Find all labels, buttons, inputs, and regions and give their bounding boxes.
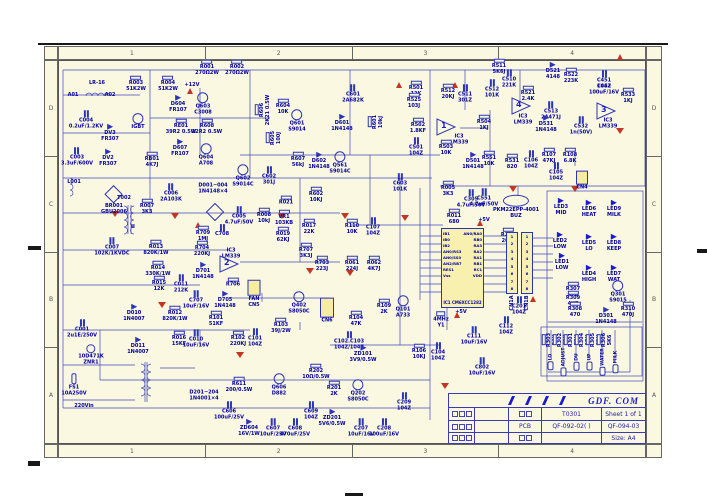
component-value: 1N4148 <box>308 165 330 171</box>
signature-mark <box>559 396 566 405</box>
component-value: FR307 <box>99 162 117 168</box>
component-ref: LR-16 <box>89 81 105 87</box>
component-l001: L001 <box>67 180 81 186</box>
component-ref: T002 <box>117 196 131 202</box>
component-r008: R00810kJ <box>257 208 271 225</box>
component-value: 270Ω2W <box>225 71 249 77</box>
component-r005: R0053K3 <box>441 181 455 198</box>
cap-symbol <box>110 237 115 244</box>
component-c106: C106104Z <box>524 150 538 170</box>
component-value: 103KB <box>275 221 293 227</box>
component-value: Y1 <box>437 323 444 329</box>
component-value: 1KJ <box>479 126 488 132</box>
sheet-number: Sheet 1 of 1 <box>601 408 645 420</box>
component-c601: C6012A682K <box>342 84 364 104</box>
comparator-symbol: 2 <box>218 254 240 278</box>
component-r108: R1086.8K <box>563 148 577 165</box>
stamp-cell <box>449 433 474 443</box>
pin-number: 7 <box>511 280 514 284</box>
component-4mhz: 4MHzY1 <box>433 311 449 329</box>
cap-symbol <box>168 183 173 190</box>
component-value: 820K/1W <box>162 317 187 323</box>
component-value: HEAT <box>582 213 597 219</box>
component-value: 223J <box>316 267 328 273</box>
comparator-number: 1 <box>441 121 447 130</box>
pin-number: 7 <box>526 280 529 284</box>
component-value: 1n(50V) <box>570 130 592 136</box>
tr-symbol <box>198 92 209 103</box>
component-c609: C609104Z <box>304 401 318 421</box>
stamp-cell <box>541 433 601 443</box>
component-d001-004: D001~0041N4148×4 <box>198 183 227 195</box>
power-rail-icon <box>530 296 536 302</box>
scan-artifact <box>38 43 668 45</box>
pcb-label: PCB <box>508 421 541 432</box>
zn2-symbol <box>86 344 95 353</box>
component-value: S8050C <box>288 309 309 315</box>
component-value: 16V/1W <box>238 432 260 438</box>
signature-mark <box>542 396 549 405</box>
component-r013: R013820K/1W <box>143 240 168 257</box>
component-r308: R308470 <box>568 302 582 319</box>
component-ref: 220Vin <box>74 404 94 410</box>
component-r504: R5041KJ <box>477 115 491 132</box>
button-lo: LO <box>548 354 555 371</box>
ic-part: CM6XCC1282 <box>452 300 482 305</box>
component-led3: LED3MID <box>554 198 568 217</box>
component-d601: D6011N4148 <box>331 114 353 133</box>
cap-symbol <box>292 418 297 425</box>
component-r531: R531820 <box>505 154 519 171</box>
component-led9: LED9MILK <box>607 200 621 219</box>
component-value: CN5 <box>248 303 259 309</box>
component-ref: CN4 <box>576 186 587 192</box>
component-ref: A01 <box>68 93 79 99</box>
component-r101: R10151KF <box>209 311 223 328</box>
component-led5: LED5LO <box>582 234 596 253</box>
component-ref: R021 <box>279 201 293 207</box>
ground-icon <box>236 352 244 358</box>
component-c708: C708 <box>215 224 229 238</box>
component-c112: C112104Z <box>499 316 513 336</box>
pin-number: 4 <box>526 257 529 261</box>
component-value: 20KJ <box>442 95 455 101</box>
pin-number: 4 <box>511 257 514 261</box>
button-du: DU <box>574 353 581 370</box>
component-value: 1N4148 <box>331 127 353 133</box>
component-c105: C105104Z <box>549 162 563 182</box>
component-ref: IGBT <box>131 125 144 131</box>
component-value: 223K <box>564 79 578 85</box>
component-value: 301J <box>263 180 275 186</box>
component-value: 10K <box>484 162 495 168</box>
component-value: 101K <box>485 93 499 99</box>
component-r601: R60110kJ <box>368 115 385 129</box>
drawing-code-1: QF-092-02( ) <box>541 421 601 432</box>
button-water: WATER <box>600 348 607 376</box>
cap-symbol <box>271 418 276 425</box>
pin-number: 6 <box>526 272 529 276</box>
component-c512: C512101K <box>485 79 499 99</box>
component-r525: R525103J <box>407 93 421 110</box>
con-symbol <box>248 280 261 296</box>
component-d705: D7051N4148 <box>214 291 236 310</box>
component-r611: R611200/0.5W <box>226 377 253 394</box>
pin-number: 1 <box>511 235 514 239</box>
component-value: 2K <box>380 310 387 316</box>
cap-symbol <box>266 166 271 173</box>
component-10d471k: 10D471KZNR1 <box>78 344 103 366</box>
component-d521: D5214148 <box>546 62 561 81</box>
pushbutton-symbol <box>587 361 593 370</box>
component-led2: LED2LOW <box>553 232 567 251</box>
component-value: 5V6/0.5W <box>318 422 345 428</box>
component-value: 4K7J <box>146 163 159 169</box>
component-value: 22R2 0.5W <box>192 130 222 136</box>
component-c603: C603101K <box>393 173 407 193</box>
brg-symbol <box>206 203 224 221</box>
stamp-cell <box>474 421 508 432</box>
stamp-cell <box>508 433 541 443</box>
component-r102: R102220KJ <box>230 331 246 348</box>
component-c104: C104104Z <box>431 342 445 362</box>
component-ref: II <box>131 225 135 231</box>
stamp-cell <box>508 408 541 420</box>
stamp-cell <box>449 408 474 420</box>
component-value: 470uF/25V <box>280 432 310 438</box>
component-r109: R1092K <box>377 299 391 316</box>
component-c004: C0040.2uF/1.2KV <box>69 110 103 130</box>
cap-symbol <box>435 342 440 349</box>
component-value: 10K <box>278 110 289 116</box>
component-value: 200/0.5W <box>226 388 253 394</box>
component-value: 51KF <box>209 322 223 328</box>
component-value: S8050C <box>347 397 368 403</box>
component-ref: A02 <box>105 93 116 99</box>
component-value: FR307 <box>101 137 119 143</box>
cap-symbol <box>79 319 84 326</box>
component-value: 104Z <box>549 176 563 182</box>
component-value: 104Z <box>499 330 513 336</box>
cap-symbol <box>472 326 477 333</box>
ground-icon <box>509 186 517 192</box>
pushbutton-symbol <box>613 364 619 373</box>
component-value: 4148 <box>546 75 560 81</box>
signature-mark <box>525 396 532 405</box>
component-d010: D0101N4007 <box>123 304 145 323</box>
component-r015: R01512K <box>152 276 166 293</box>
component-q603: Q603C3008 <box>194 92 212 116</box>
component-d501: D5011N4148 <box>462 152 484 171</box>
ic-pin-label: VDD <box>463 273 482 279</box>
cap-symbol <box>83 110 88 117</box>
component-r004: R00451K2W <box>158 76 178 93</box>
component-value: 1N4148 <box>192 275 214 281</box>
component-value: 2A682K <box>342 98 364 104</box>
comparator-number: 4 <box>516 100 522 109</box>
component-value: C3008 <box>194 110 212 116</box>
ground-icon <box>306 268 314 274</box>
tr-symbol <box>353 379 364 390</box>
component-c003: C0033.3uF/600V <box>61 147 93 167</box>
component-value: LOW <box>556 266 569 272</box>
component-r110: R11010K <box>345 219 359 236</box>
component-c532: C5321n(50V) <box>570 116 592 136</box>
component-q601: Q601S9014 <box>288 109 306 133</box>
ic-ref: IC1 <box>443 300 450 305</box>
component-q402: Q402S8050C <box>288 291 309 315</box>
component-ii: II <box>131 225 135 231</box>
sheet-size: Size: A4 <box>601 433 645 443</box>
component-value: 12K <box>154 287 165 293</box>
component-a02: A02 <box>105 93 116 99</box>
component-led6: LED6HEAT <box>582 200 597 219</box>
component-r606: R6062K21 0.5W <box>255 95 272 125</box>
signature-row: GDF. COM <box>449 394 645 407</box>
component-value: 1N4007 <box>127 350 149 356</box>
component-value: KEEP <box>607 247 621 253</box>
button-label: UP <box>588 354 593 361</box>
component-c101: C101104Z <box>248 328 262 348</box>
cap-symbol <box>194 290 199 297</box>
component-value: LO <box>585 247 592 253</box>
component-c111: C11110uF/16V <box>461 326 488 346</box>
cap-symbol <box>194 329 199 336</box>
cap-symbol <box>528 150 533 157</box>
component-q606: Q606D882 <box>272 373 287 397</box>
button-label: DU <box>575 353 580 360</box>
component-220vin: 220Vin <box>74 404 94 410</box>
button-label: MILK <box>614 351 619 364</box>
component-cn4: CN4 <box>576 171 588 192</box>
comparator-number: 3 <box>601 105 607 114</box>
component-value: 22K <box>304 230 315 236</box>
stamp-cell <box>474 408 508 420</box>
component-q101: Q101A733 <box>396 295 411 319</box>
pin-number: 8 <box>511 287 514 291</box>
component-value: FR107 <box>169 108 187 114</box>
component-r201: R2012K <box>327 381 341 398</box>
component-r502: R5021.8KF <box>410 118 426 135</box>
component-c602: C602301J <box>262 166 276 186</box>
component-zd101: ZD1013V9/0.5W <box>349 345 376 364</box>
pin-number: 3 <box>511 250 514 254</box>
title-block: GDF. COM T0301 Sheet 1 of 1 PCB QF-092-0… <box>448 393 646 444</box>
component-value: 4.7uF/50V <box>457 203 486 209</box>
cap-symbol <box>179 274 184 281</box>
cap-symbol <box>401 392 406 399</box>
component-a01: A01 <box>68 93 79 99</box>
cap-symbol <box>359 418 364 425</box>
tr-symbol <box>292 109 303 120</box>
component-d602: D6021N4148 <box>308 152 330 171</box>
component-ref: CN6 <box>321 319 332 325</box>
component-value: 1N4148 <box>535 128 557 134</box>
tr-symbol <box>398 295 409 306</box>
tr-symbol <box>274 373 285 384</box>
component-value: 680 <box>449 220 459 226</box>
component-value: 10uF/16V <box>461 340 488 346</box>
component-rb01: RB014K7J <box>145 152 160 169</box>
component-r019: R01962KJ <box>276 227 290 244</box>
component-value: 10uF/16V <box>469 371 496 377</box>
component-q561: Q561S9014C <box>329 151 350 175</box>
cap-symbol <box>490 79 495 86</box>
component-value: A733 <box>396 313 410 319</box>
component-fan: FANCN5 <box>248 280 261 309</box>
button-label: WATER <box>601 348 606 366</box>
component-zd604: ZD60416V/1W <box>238 419 260 438</box>
component-r503: R50310K <box>439 140 453 157</box>
component-dv2: DV2FR307 <box>99 149 117 168</box>
component-value: 221K <box>502 83 516 89</box>
component-r306: R3065K6 <box>597 333 614 347</box>
component-value: 470 <box>570 313 580 319</box>
scan-artifact <box>28 246 41 250</box>
component-led8: LED8KEEP <box>607 234 621 253</box>
component-value: 104Z <box>366 231 380 237</box>
component-ref: C708 <box>215 232 229 238</box>
component-value: A708 <box>199 161 213 167</box>
component--12v: +12V <box>184 83 199 89</box>
component-value: 2K21 0.5W <box>266 95 272 125</box>
component-r061: R061224J <box>345 256 359 273</box>
pin-number: 2 <box>526 242 529 246</box>
component-value: 1.8KF <box>410 129 426 135</box>
tr-symbol <box>238 164 249 175</box>
component-value: HIGH <box>582 278 596 284</box>
comparator-symbol: 1 <box>435 117 457 141</box>
ic1-microcontroller: IB1IB0IB2AN0/RS3AN0/SS0AN2/RB7RES1VssAN0… <box>441 228 484 308</box>
component-lr-16: LR-16 <box>89 81 105 87</box>
component-r103: R10339J/2W <box>271 318 291 335</box>
component-value: 5K6 <box>608 335 614 346</box>
component-value: 1N4148 <box>214 304 236 310</box>
component-r012: R012820K/1W <box>162 306 187 323</box>
component-r007: R0073K3 <box>140 199 154 216</box>
component-value: 10Ω/0.5W <box>302 375 329 381</box>
tr-symbol <box>613 280 624 291</box>
component-value: ZNR1 <box>83 360 98 366</box>
component-fs1: FS110A250V <box>61 373 86 397</box>
component-value: FR107 <box>171 152 189 158</box>
cap-symbol <box>398 173 403 180</box>
component-d201-204: D201~2041N4001×4 <box>189 390 218 402</box>
component-r062: R0624K7J <box>367 256 381 273</box>
component-c501: C501104Z <box>409 137 423 157</box>
cap-symbol <box>370 217 375 224</box>
component-r607: R60756kJ <box>291 152 305 169</box>
component-cn6: CN6 <box>320 298 334 325</box>
power-rail-icon <box>617 54 623 60</box>
component-value: BUZ <box>510 214 522 220</box>
button-up: UP <box>587 354 594 371</box>
cap-symbol <box>469 189 474 196</box>
component-r104: R10447K <box>349 311 363 328</box>
component-r021: R021 <box>279 196 293 207</box>
tr-symbol <box>201 143 212 154</box>
component-value: GBU2006 <box>101 210 127 216</box>
cap-symbol <box>381 418 386 425</box>
component-value: MILK <box>607 213 621 219</box>
component-value: 10K <box>347 230 358 236</box>
component-r001: R001270Ω2W <box>195 60 219 77</box>
component-r202: R20210Ω/0.5W <box>302 364 329 381</box>
component-r706: R706 <box>226 278 240 289</box>
component-value: 100uF/16V <box>589 90 619 96</box>
ground-icon <box>401 215 409 221</box>
connector-label: CN1B <box>524 295 530 310</box>
component-value: 104Z <box>304 415 318 421</box>
component-value: S9014C <box>232 182 253 188</box>
cap-symbol <box>553 162 558 169</box>
component-value: 2u1E/250V <box>67 333 97 339</box>
component-value: 62KJ <box>277 238 290 244</box>
component-r011: R011680 <box>447 209 461 226</box>
component-value: 0.2uF/1.2KV <box>69 124 103 130</box>
component-c511: C511301Z <box>458 84 472 104</box>
component-r533: R5331KJ <box>621 88 635 105</box>
component-value: 101K <box>393 187 407 193</box>
connector-label: CN1A <box>509 295 515 310</box>
cap-symbol <box>252 328 257 335</box>
component-r551: R55110K <box>482 151 496 168</box>
component-c010: C01010uF/16V <box>183 329 210 349</box>
component-q202: Q202S8050C <box>347 379 368 403</box>
drawing-code-2: QF-094-03 <box>601 421 645 432</box>
component-r106: R10610KJ <box>412 344 426 361</box>
component-d701: D7011N4148 <box>192 262 214 281</box>
component-c209: C209104Z <box>397 392 411 412</box>
component--5v: +5V <box>455 310 467 316</box>
button-label: LO <box>549 354 554 361</box>
tr-symbol <box>294 291 305 302</box>
pin-number: 8 <box>526 287 529 291</box>
component-value: 1KJ <box>623 99 632 105</box>
pin-number: 3 <box>526 250 529 254</box>
component-ref: +5V <box>478 218 490 224</box>
pin-number: 6 <box>511 272 514 276</box>
component-c006: C0062A103K <box>160 183 182 203</box>
cap-symbol <box>507 69 512 76</box>
component-value: 3K3J <box>300 254 313 260</box>
pushbutton-symbol <box>561 367 567 376</box>
component-d011: D0111N4007 <box>127 337 149 356</box>
component-ref: L001 <box>67 180 81 186</box>
cap-symbol <box>219 224 224 231</box>
cap-symbol <box>350 84 355 91</box>
scan-artifact <box>345 493 363 496</box>
component-value: D882 <box>272 391 287 397</box>
component-q602: Q602S9014C <box>232 164 253 188</box>
component-c802: C80210uF/16V <box>469 357 496 377</box>
component-d607: D607FR107 <box>171 139 189 158</box>
component-value: 104Z <box>512 310 526 316</box>
component-c452: C452100uF/16V <box>589 84 619 96</box>
cap-symbol <box>480 357 485 364</box>
component-value: 220KJ <box>230 342 246 348</box>
pushbutton-symbol <box>600 367 606 376</box>
cap-symbol <box>462 84 467 91</box>
cap-symbol <box>226 401 231 408</box>
pin-number: 5 <box>526 265 529 269</box>
component-c001: C0012u1E/250V <box>67 319 97 339</box>
company-name: GDF. COM <box>588 396 639 406</box>
component-r703: R703223J <box>315 256 329 273</box>
component-value: 301Z <box>458 98 472 104</box>
component-value: 220KJ <box>194 252 210 258</box>
component-value: 100J <box>277 132 283 144</box>
